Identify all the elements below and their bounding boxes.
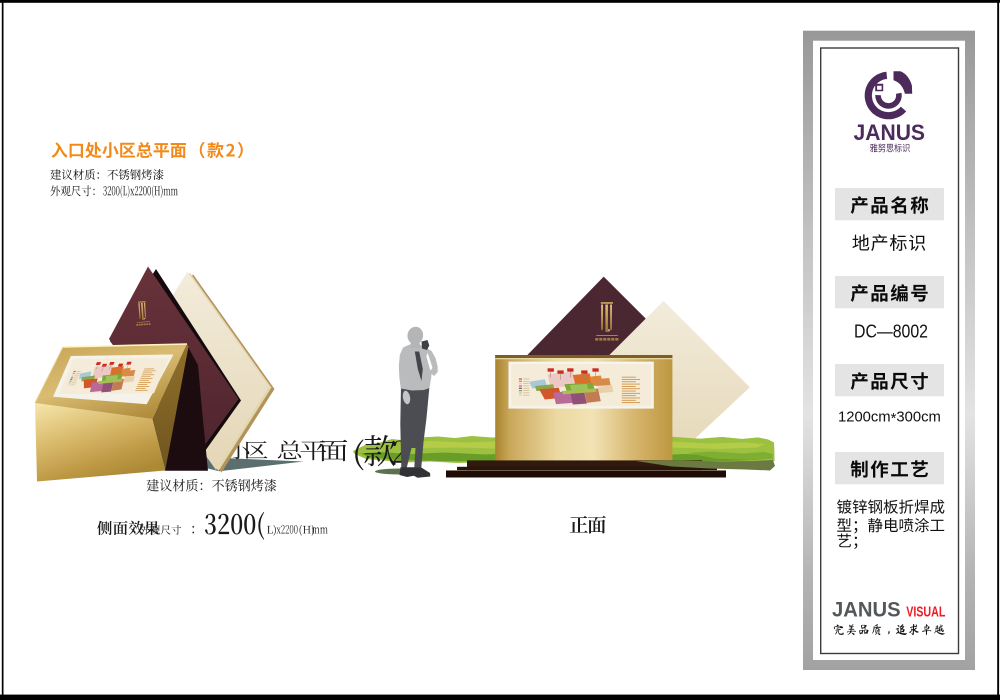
svg-text:VISUAL: VISUAL [906, 605, 945, 621]
svg-text:JANUS: JANUS [832, 598, 901, 622]
svg-text:1200cm*300cm: 1200cm*300cm [838, 408, 941, 427]
svg-text:JANUS: JANUS [854, 120, 926, 145]
svg-text:DC—8002: DC—8002 [854, 322, 928, 342]
